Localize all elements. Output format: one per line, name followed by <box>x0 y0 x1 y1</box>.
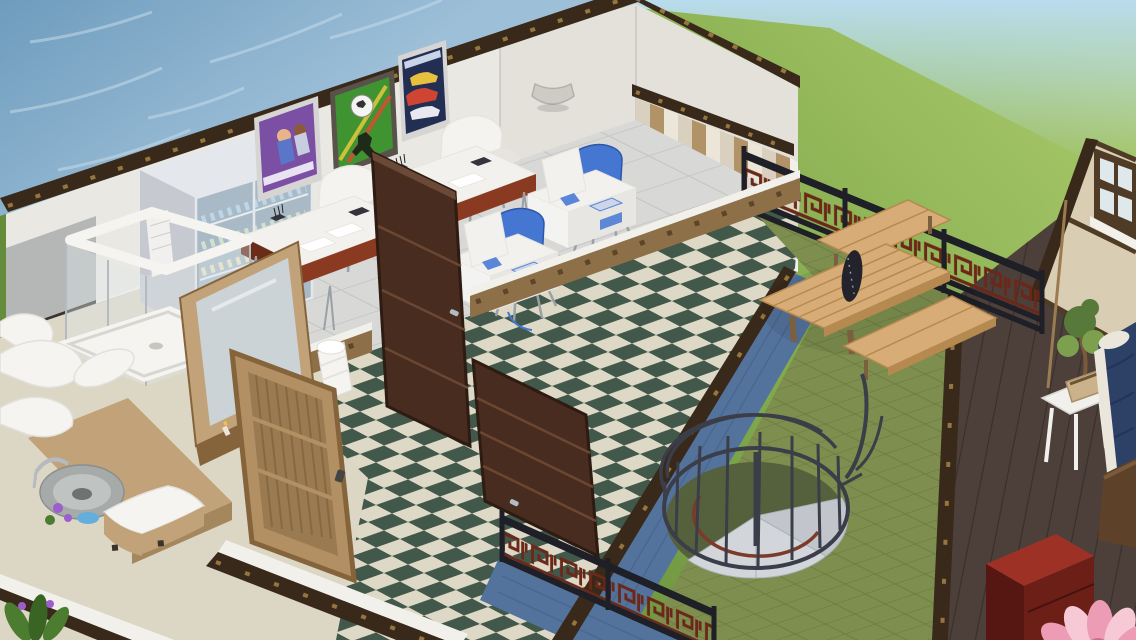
foliage-3 <box>1057 335 1079 357</box>
blue-bowl <box>77 512 99 524</box>
foliage-4 <box>1081 299 1099 317</box>
wall-sconce[interactable] <box>532 84 574 112</box>
basin-drain <box>72 488 92 500</box>
faucet-stem <box>34 472 36 488</box>
flower-leaves <box>45 515 55 525</box>
bloom-2 <box>46 600 54 608</box>
door-dark-north[interactable] <box>372 152 470 446</box>
towel-roll-top <box>317 340 345 354</box>
drain <box>149 343 163 350</box>
flower-2 <box>64 514 72 522</box>
bloom-1 <box>18 602 26 610</box>
flower-1 <box>53 503 63 513</box>
cars-poster[interactable] <box>398 40 450 142</box>
sconce-shadow <box>537 104 569 112</box>
game-viewport <box>0 0 1136 640</box>
